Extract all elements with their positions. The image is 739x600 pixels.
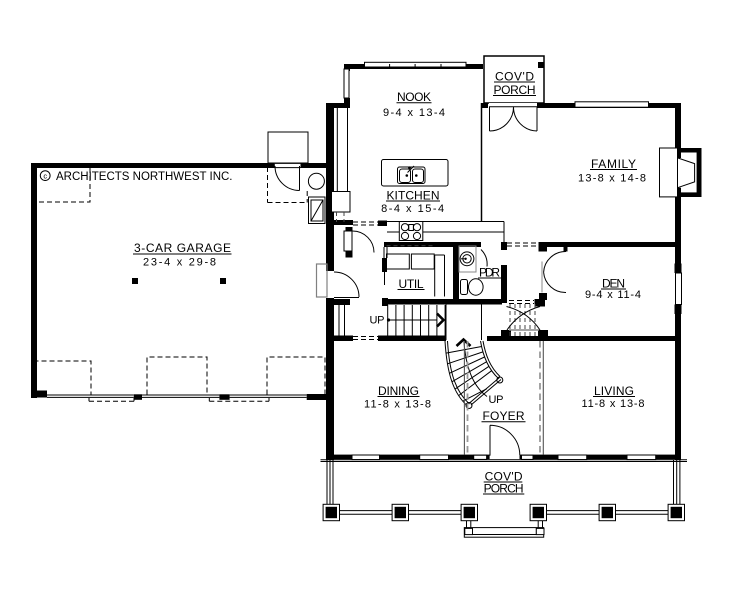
svg-text:PDR: PDR xyxy=(479,266,500,280)
svg-text:3-CAR GARAGE: 3-CAR GARAGE xyxy=(134,241,231,255)
svg-text:PORCH: PORCH xyxy=(484,482,524,496)
svg-text:11-8 x 13-8: 11-8 x 13-8 xyxy=(582,398,645,410)
svg-text:DINING: DINING xyxy=(378,384,419,398)
svg-text:ARCHITECTS NORTHWEST INC.: ARCHITECTS NORTHWEST INC. xyxy=(56,171,233,183)
svg-text:NOOK: NOOK xyxy=(397,90,431,104)
svg-text:PORCH: PORCH xyxy=(494,83,536,97)
svg-text:KITCHEN: KITCHEN xyxy=(387,189,440,203)
svg-text:8-4 x 15-4: 8-4 x 15-4 xyxy=(381,203,444,215)
svg-text:UP: UP xyxy=(489,394,504,406)
svg-text:c: c xyxy=(43,171,47,180)
svg-text:23-4 x 29-8: 23-4 x 29-8 xyxy=(143,257,216,269)
svg-text:FOYER: FOYER xyxy=(483,409,525,423)
svg-text:UP: UP xyxy=(370,315,385,327)
svg-text:LIVING: LIVING xyxy=(594,384,634,398)
svg-text:UTIL: UTIL xyxy=(399,277,424,291)
svg-text:13-8 x 14-8: 13-8 x 14-8 xyxy=(578,173,646,185)
svg-text:9-4 x 13-4: 9-4 x 13-4 xyxy=(383,107,445,119)
svg-text:COV'D: COV'D xyxy=(495,70,534,84)
svg-text:FAMILY: FAMILY xyxy=(591,157,636,171)
svg-text:9-4 x 11-4: 9-4 x 11-4 xyxy=(585,289,641,301)
svg-text:11-8 x 13-8: 11-8 x 13-8 xyxy=(364,399,431,411)
